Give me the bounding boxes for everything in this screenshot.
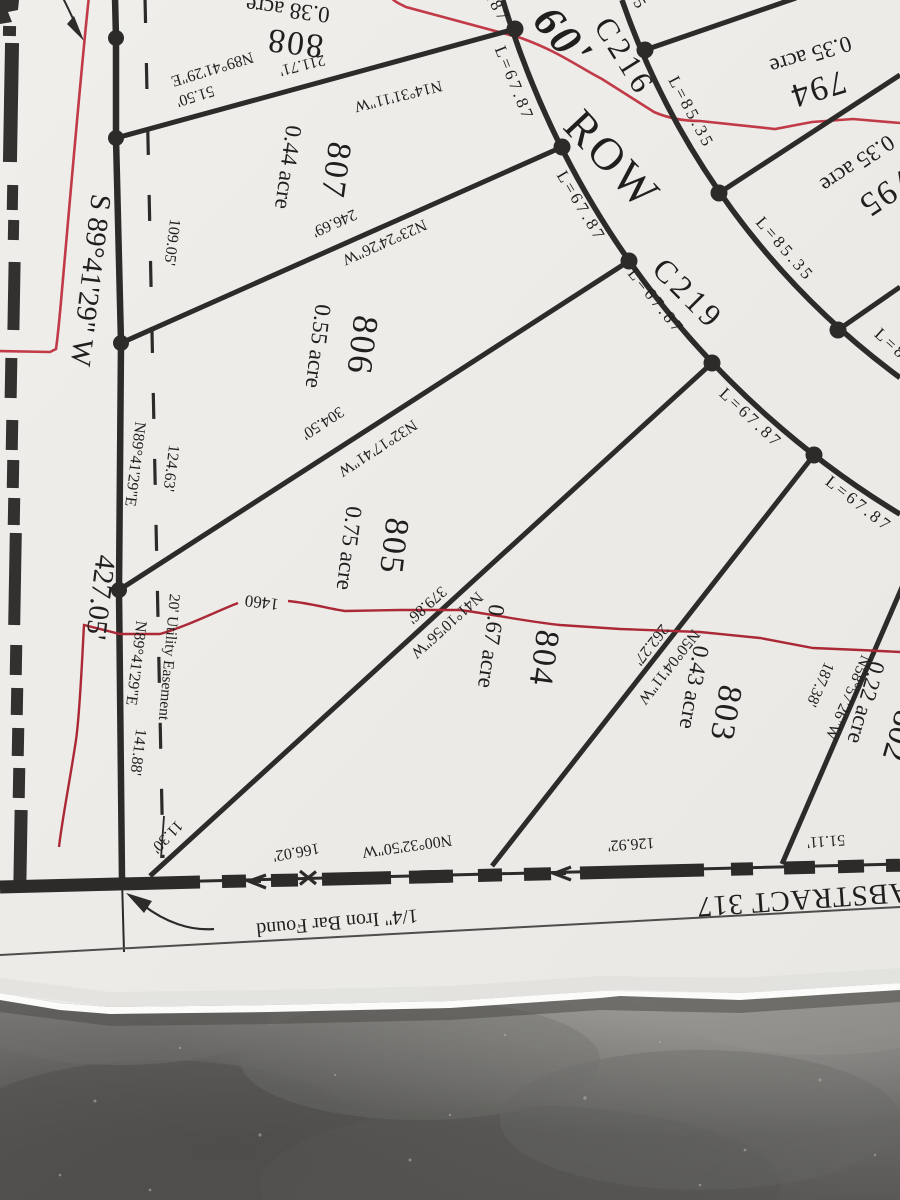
svg-text:126.92': 126.92' bbox=[607, 834, 655, 854]
svg-text:804: 804 bbox=[521, 628, 566, 690]
svg-text:805: 805 bbox=[372, 516, 416, 577]
svg-text:807: 807 bbox=[313, 140, 358, 202]
svg-text:51.11': 51.11' bbox=[806, 831, 845, 851]
svg-text:806: 806 bbox=[339, 313, 386, 377]
